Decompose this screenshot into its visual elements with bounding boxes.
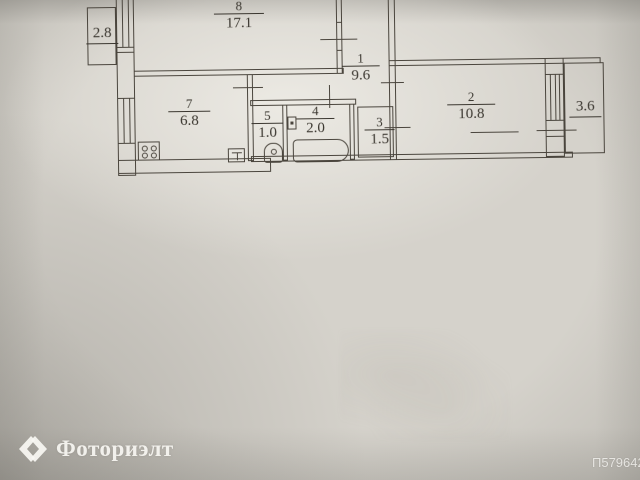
wall-bottom-ledge <box>118 158 271 174</box>
dimension-tick <box>381 82 404 84</box>
room-number: 7 <box>168 97 210 112</box>
balcony-2-label: 2.8 <box>86 24 118 44</box>
wall-divider <box>545 120 564 121</box>
wall-room8-bottom <box>134 68 344 77</box>
room-area: 2.0 <box>296 119 334 137</box>
room-area: 10.8 <box>447 105 495 123</box>
room-number: 5 <box>251 109 283 123</box>
room-area: 9.6 <box>342 66 380 84</box>
room-8-label: 8 17.1 <box>214 0 264 32</box>
paper-smudge <box>340 330 510 440</box>
room-number: 8 <box>214 0 264 14</box>
wall-divider <box>117 98 135 99</box>
watermark-brand: Фоториэлт <box>56 436 174 462</box>
photo-of-floor-plan: 2.8 8 17.1 7 6.8 1 9.6 <box>0 0 640 480</box>
room-number: 1 <box>341 51 379 66</box>
photo-id: П579642 <box>592 455 640 470</box>
wall-left-exterior <box>116 0 137 176</box>
wall-divider <box>118 143 136 144</box>
dimension-tick <box>320 39 357 41</box>
watermark: Фоториэлт <box>18 434 174 464</box>
room-number: 4 <box>296 104 334 119</box>
room-number: 2 <box>447 90 495 105</box>
wall-bath-right <box>349 104 355 160</box>
wall-room2-left <box>388 0 397 160</box>
dimension-tick <box>233 87 263 89</box>
room-1-label: 1 9.6 <box>341 51 379 84</box>
diamond-chevrons-icon <box>18 434 48 464</box>
room-2-label: 2 10.8 <box>447 90 495 123</box>
room-area: 17.1 <box>214 14 264 32</box>
room-area: 1.0 <box>251 124 283 141</box>
stove-icon <box>138 141 160 160</box>
balcony-3-label: 3.6 <box>569 97 601 117</box>
wall-divider <box>116 52 134 53</box>
room-5-label: 5 1.0 <box>251 109 283 141</box>
door-jamb <box>336 22 342 23</box>
wall-divider <box>116 47 134 48</box>
room-area: 6.8 <box>168 112 210 130</box>
dimension-tick <box>471 131 519 133</box>
sink-icon <box>287 116 296 129</box>
wall-divider <box>546 136 565 137</box>
room-7-label: 7 6.8 <box>168 97 210 130</box>
floor-plan: 2.8 8 17.1 7 6.8 1 9.6 <box>0 0 640 225</box>
room-4-label: 4 2.0 <box>296 104 334 137</box>
